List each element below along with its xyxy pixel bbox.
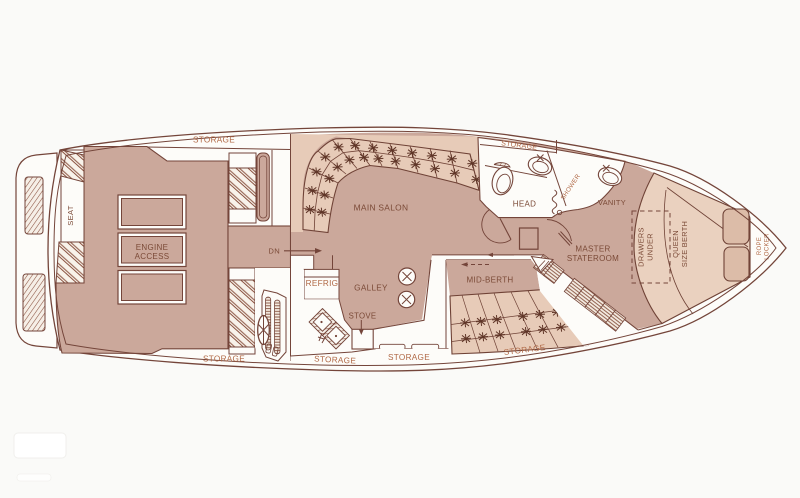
- svg-text:UNDER: UNDER: [646, 233, 655, 261]
- svg-text:DRAWERS: DRAWERS: [637, 227, 646, 267]
- svg-text:STOVE: STOVE: [349, 312, 377, 321]
- svg-text:ENGINE: ENGINE: [136, 243, 168, 252]
- svg-text:REFRIG: REFRIG: [306, 279, 339, 288]
- svg-text:HEAD: HEAD: [513, 200, 536, 209]
- svg-text:VANITY: VANITY: [598, 198, 626, 207]
- svg-text:GALLEY: GALLEY: [354, 284, 388, 293]
- svg-text:MAIN SALON: MAIN SALON: [354, 203, 409, 213]
- svg-text:SEAT: SEAT: [66, 205, 75, 226]
- svg-text:DN: DN: [268, 247, 280, 256]
- svg-text:STORAGE: STORAGE: [203, 355, 245, 364]
- svg-text:MASTER: MASTER: [575, 245, 610, 254]
- svg-text:ACCESS: ACCESS: [135, 252, 170, 261]
- svg-text:ROPE: ROPE: [757, 237, 763, 255]
- svg-text:QUEEN: QUEEN: [671, 230, 680, 258]
- svg-text:MID-BERTH: MID-BERTH: [467, 276, 514, 285]
- svg-text:STORAGE: STORAGE: [193, 136, 235, 145]
- svg-text:STATEROOM: STATEROOM: [567, 254, 619, 263]
- svg-text:STORAGE: STORAGE: [388, 353, 430, 362]
- svg-text:SIZE BERTH: SIZE BERTH: [680, 221, 689, 267]
